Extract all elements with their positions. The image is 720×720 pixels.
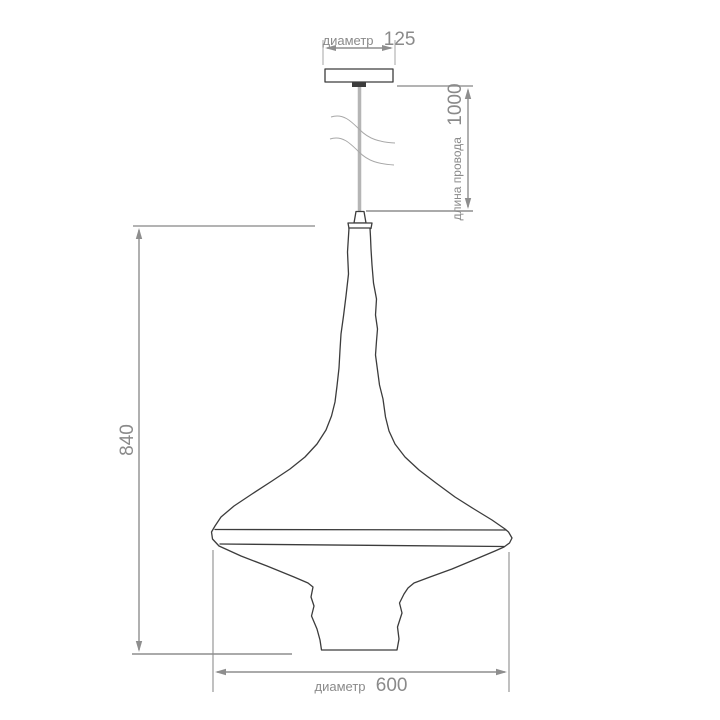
canopy-diameter-label: диаметр 125 <box>323 29 416 50</box>
arrow-left-icon <box>215 669 226 675</box>
extension-lines <box>133 40 473 226</box>
lamp-outline-group <box>212 69 513 650</box>
ceiling-canopy <box>325 69 393 82</box>
lamp-socket <box>354 212 366 224</box>
cord-break-marks <box>330 116 395 165</box>
cord-attachment <box>352 83 366 88</box>
technical-drawing-page: диаметр 125 длина провода 1000 840 диаме… <box>0 0 720 720</box>
arrow-down-icon <box>136 641 142 652</box>
arrow-up-icon <box>136 228 142 239</box>
rim-top-edge-line <box>215 530 506 531</box>
arrow-down-icon <box>465 198 471 209</box>
shade-diameter-label: диаметр 600 <box>315 675 408 696</box>
lamp-shade-silhouette <box>212 228 513 650</box>
shade-height-label: 840 <box>117 424 138 456</box>
pendant-lamp-drawing: диаметр 125 длина провода 1000 840 диаме… <box>0 0 720 720</box>
arrow-right-icon <box>496 669 507 675</box>
dimension-labels: диаметр 125 длина провода 1000 840 диаме… <box>117 29 466 696</box>
cord-length-label: длина провода 1000 <box>445 83 466 220</box>
